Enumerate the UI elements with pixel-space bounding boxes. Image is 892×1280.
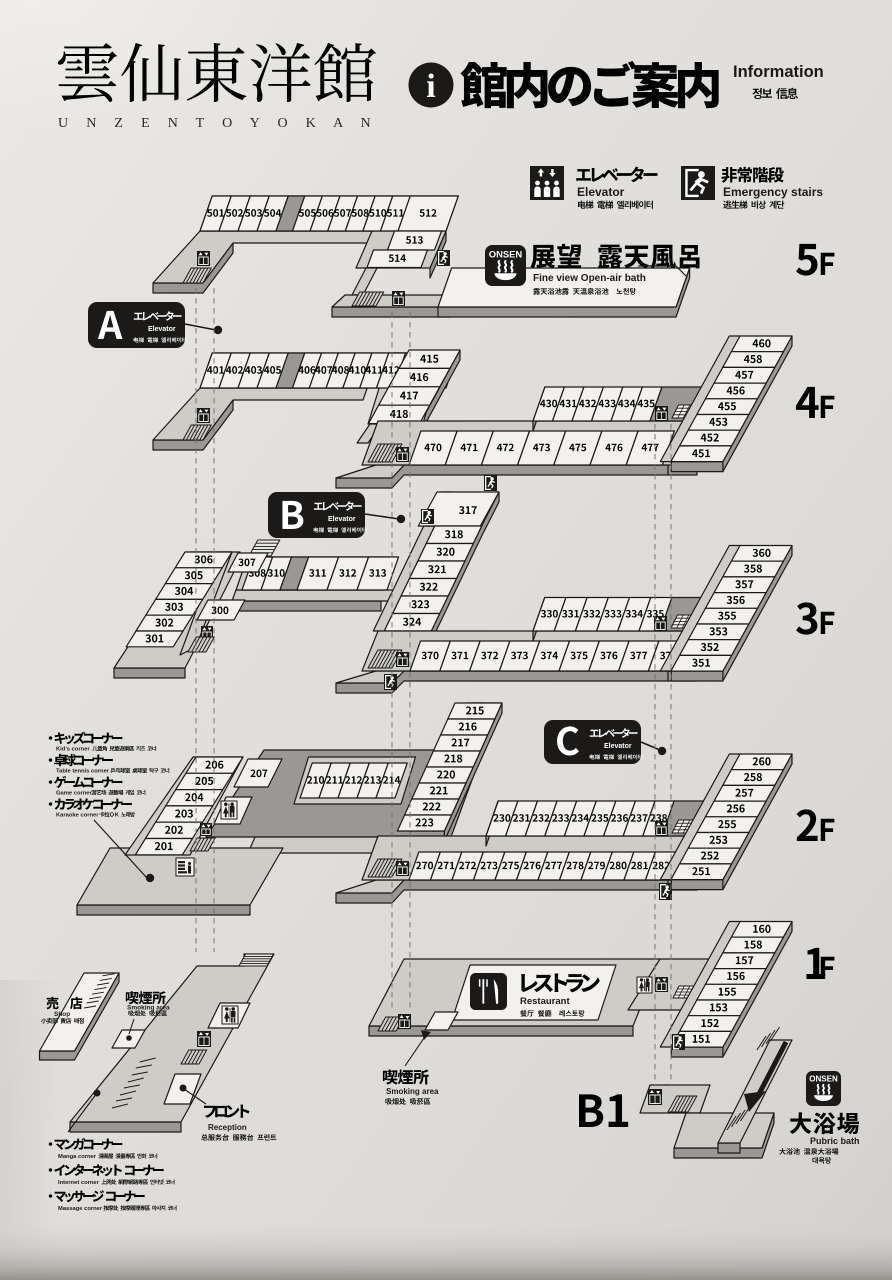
svg-text:Elevator: Elevator	[577, 185, 625, 199]
svg-text:i: i	[426, 68, 435, 105]
svg-text:Massage corner: Massage corner	[58, 1206, 103, 1212]
svg-text:Elevator: Elevator	[604, 743, 632, 750]
svg-text:Game corner: Game corner	[56, 791, 93, 797]
svg-text:ONSEN: ONSEN	[809, 1075, 838, 1084]
svg-text:Internet corner: Internet corner	[58, 1180, 100, 1186]
svg-text:Kid's corner: Kid's corner	[56, 747, 90, 753]
svg-text:Reception: Reception	[208, 1123, 247, 1132]
svg-text:Emergency stairs: Emergency stairs	[723, 185, 823, 199]
svg-text:Manga corner: Manga corner	[58, 1154, 97, 1160]
svg-text:U N Z E N T O Y O K A N: U N Z E N T O Y O K A N	[58, 116, 378, 131]
svg-text:Pubric bath: Pubric bath	[810, 1136, 860, 1146]
svg-text:Shop: Shop	[54, 1011, 70, 1018]
svg-text:Table tennis corner: Table tennis corner	[56, 769, 110, 775]
svg-text:Smoking area: Smoking area	[127, 1005, 170, 1012]
svg-text:Information: Information	[733, 63, 824, 81]
svg-text:Smoking area: Smoking area	[386, 1087, 439, 1096]
svg-text:Karaoke corner: Karaoke corner	[56, 813, 99, 819]
svg-text:Elevator: Elevator	[148, 326, 176, 333]
svg-text:Elevator: Elevator	[328, 516, 356, 523]
svg-text:Fine view Open-air bath: Fine view Open-air bath	[533, 273, 646, 284]
svg-text:Restaurant: Restaurant	[520, 996, 570, 1007]
svg-text:ONSEN: ONSEN	[489, 248, 523, 259]
